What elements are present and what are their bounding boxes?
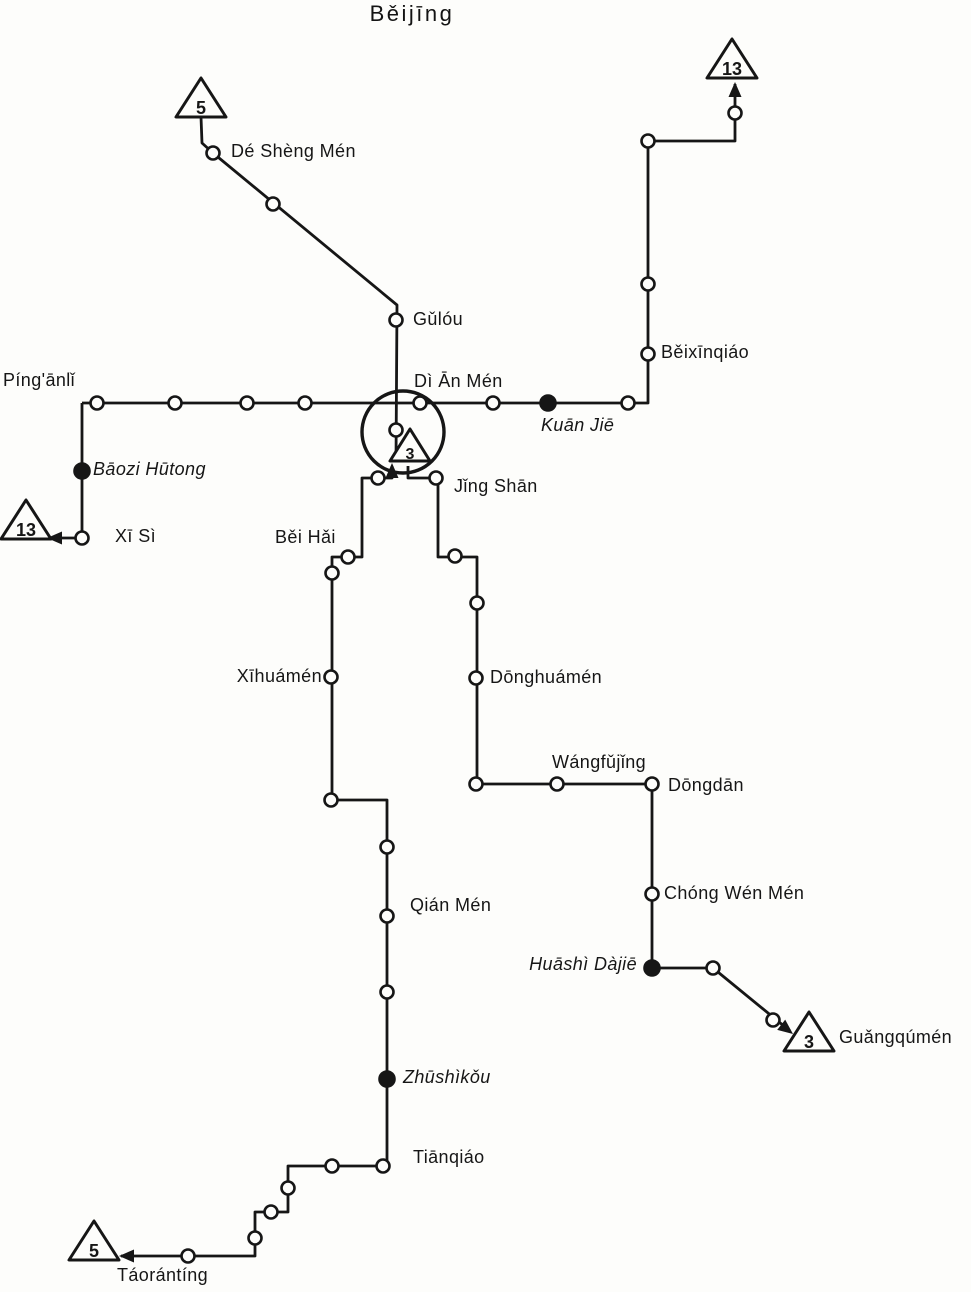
station-huashi-dajie bbox=[645, 961, 660, 976]
station-de-sheng-men bbox=[207, 147, 220, 160]
station-gulou bbox=[390, 314, 403, 327]
station-donghuamen bbox=[470, 672, 483, 685]
station bbox=[249, 1232, 262, 1245]
terminal-route-number: 13 bbox=[722, 59, 742, 79]
station-label: Guǎngqúmén bbox=[839, 1027, 952, 1047]
route-line-main-east-west bbox=[82, 84, 735, 403]
station-label: Běi Hǎi bbox=[275, 527, 336, 547]
station-label: Bāozi Hūtong bbox=[93, 459, 206, 479]
station bbox=[767, 1014, 780, 1027]
station-kuan-jie bbox=[541, 396, 556, 411]
station bbox=[342, 551, 355, 564]
route-line-5-south bbox=[121, 466, 392, 1256]
station bbox=[707, 962, 720, 975]
station-label: Chóng Wén Mén bbox=[664, 883, 804, 903]
station-label: Wángfǔjǐng bbox=[552, 752, 646, 772]
station bbox=[449, 550, 462, 563]
station bbox=[282, 1182, 295, 1195]
station-jing-shan bbox=[430, 472, 443, 485]
station-label: Jǐng Shān bbox=[454, 476, 538, 496]
station bbox=[487, 397, 500, 410]
station bbox=[265, 1206, 278, 1219]
station-beixinqiao bbox=[642, 348, 655, 361]
station-baozi-hutong bbox=[75, 464, 90, 479]
station bbox=[642, 278, 655, 291]
beijing-tram-map: Běijīng 51313335Dé Shèng MénGǔlóuDì Ān M… bbox=[0, 0, 971, 1292]
terminal-route-number: 13 bbox=[16, 520, 36, 540]
station-label: Dōnghuámén bbox=[490, 667, 602, 687]
station bbox=[326, 1160, 339, 1173]
station bbox=[372, 472, 385, 485]
station-zhushikou bbox=[380, 1072, 395, 1087]
station bbox=[169, 397, 182, 410]
station-label: Xī Sì bbox=[115, 526, 156, 546]
station-xihuamen bbox=[325, 671, 338, 684]
terminal-route-number: 3 bbox=[406, 446, 415, 463]
map-canvas: 51313335Dé Shèng MénGǔlóuDì Ān MénPíng'ā… bbox=[0, 0, 971, 1292]
station-qian-men bbox=[381, 910, 394, 923]
terminal-route-number: 5 bbox=[89, 1241, 99, 1261]
station bbox=[381, 986, 394, 999]
station bbox=[390, 424, 403, 437]
station-wangfujing bbox=[551, 778, 564, 791]
route-line-3-east bbox=[408, 466, 790, 1031]
station bbox=[326, 567, 339, 580]
station bbox=[381, 841, 394, 854]
station bbox=[241, 397, 254, 410]
station bbox=[182, 1250, 195, 1263]
station-label: Běixīnqiáo bbox=[661, 342, 749, 362]
station-label: Táorántíng bbox=[117, 1265, 208, 1285]
station bbox=[267, 198, 280, 211]
station-tianqiao bbox=[377, 1160, 390, 1173]
station-label: Huāshì Dàjiē bbox=[529, 954, 637, 974]
station-label: Tiānqiáo bbox=[413, 1147, 485, 1167]
station-label: Dì Ān Mén bbox=[414, 371, 503, 391]
station-label: Zhūshìkǒu bbox=[402, 1067, 491, 1087]
station-chong-wen-men bbox=[646, 888, 659, 901]
station-dongdan bbox=[646, 778, 659, 791]
station bbox=[470, 778, 483, 791]
station-xi-si bbox=[76, 532, 89, 545]
station-pinganli bbox=[91, 397, 104, 410]
station bbox=[299, 397, 312, 410]
terminal-route-number: 3 bbox=[804, 1032, 814, 1052]
direction-arrow-icon bbox=[729, 82, 742, 97]
station-label: Dōngdān bbox=[668, 775, 744, 795]
station bbox=[471, 597, 484, 610]
station-label: Píng'ānlǐ bbox=[3, 370, 76, 390]
station-label: Dé Shèng Mén bbox=[231, 141, 356, 161]
station bbox=[622, 397, 635, 410]
station-di-an-men bbox=[414, 397, 427, 410]
station-label: Gǔlóu bbox=[413, 309, 463, 329]
station bbox=[325, 794, 338, 807]
station bbox=[642, 135, 655, 148]
station-label: Qián Mén bbox=[410, 895, 491, 915]
station-label: Xīhuámén bbox=[237, 666, 322, 686]
station bbox=[729, 107, 742, 120]
terminal-route-number: 5 bbox=[196, 98, 206, 118]
station-label: Kuān Jiē bbox=[541, 415, 614, 435]
direction-arrow-icon bbox=[119, 1250, 134, 1263]
